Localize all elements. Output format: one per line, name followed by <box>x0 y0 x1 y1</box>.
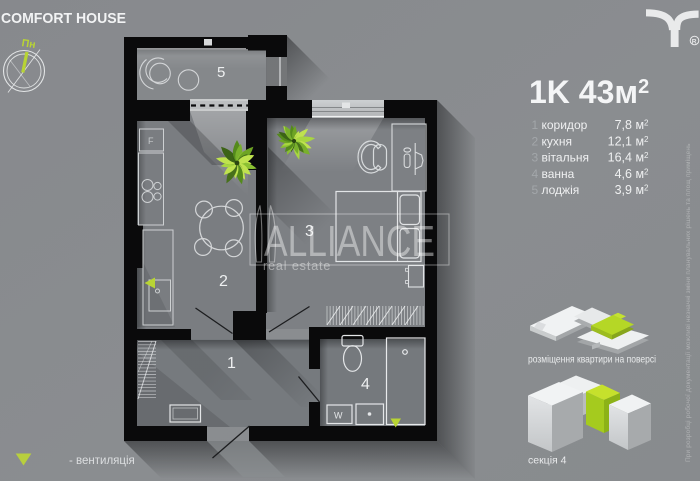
svg-text:- вентиляція: - вентиляція <box>69 455 135 467</box>
svg-text:5: 5 <box>532 183 539 197</box>
svg-text:кухня: кухня <box>542 134 573 148</box>
svg-text:4: 4 <box>361 376 370 393</box>
svg-text:16,4 м2: 16,4 м2 <box>608 151 649 165</box>
svg-text:1: 1 <box>532 118 539 132</box>
svg-text:Пн: Пн <box>21 37 37 51</box>
svg-text:5: 5 <box>217 64 225 81</box>
svg-text:2: 2 <box>219 273 228 290</box>
svg-text:3,9 м2: 3,9 м2 <box>615 183 649 197</box>
svg-text:ванна: ванна <box>542 167 575 181</box>
svg-text:1: 1 <box>227 355 236 372</box>
svg-text:вітальня: вітальня <box>542 151 589 165</box>
svg-text:коридор: коридор <box>542 118 588 132</box>
svg-text:12,1 м2: 12,1 м2 <box>608 134 649 148</box>
svg-text:2: 2 <box>532 134 539 148</box>
svg-text:4,6 м2: 4,6 м2 <box>615 167 649 181</box>
svg-text:R: R <box>692 38 697 45</box>
svg-text:лоджія: лоджія <box>542 183 580 197</box>
svg-text:3: 3 <box>532 151 539 165</box>
svg-text:F: F <box>148 136 154 146</box>
svg-text:розміщення квартири на поверсі: розміщення квартири на поверсі <box>528 354 656 366</box>
svg-text:секція 4: секція 4 <box>528 455 567 467</box>
svg-text:W: W <box>334 411 343 421</box>
svg-text:4: 4 <box>532 167 539 181</box>
svg-text:1K 43м2: 1K 43м2 <box>529 74 649 110</box>
svg-text:real estate: real estate <box>263 259 331 273</box>
svg-text:7,8 м2: 7,8 м2 <box>615 118 649 132</box>
svg-text:COMFORT HOUSE: COMFORT HOUSE <box>1 10 126 27</box>
svg-text:При розробці робочої документа: При розробці робочої документації можлив… <box>684 143 692 462</box>
